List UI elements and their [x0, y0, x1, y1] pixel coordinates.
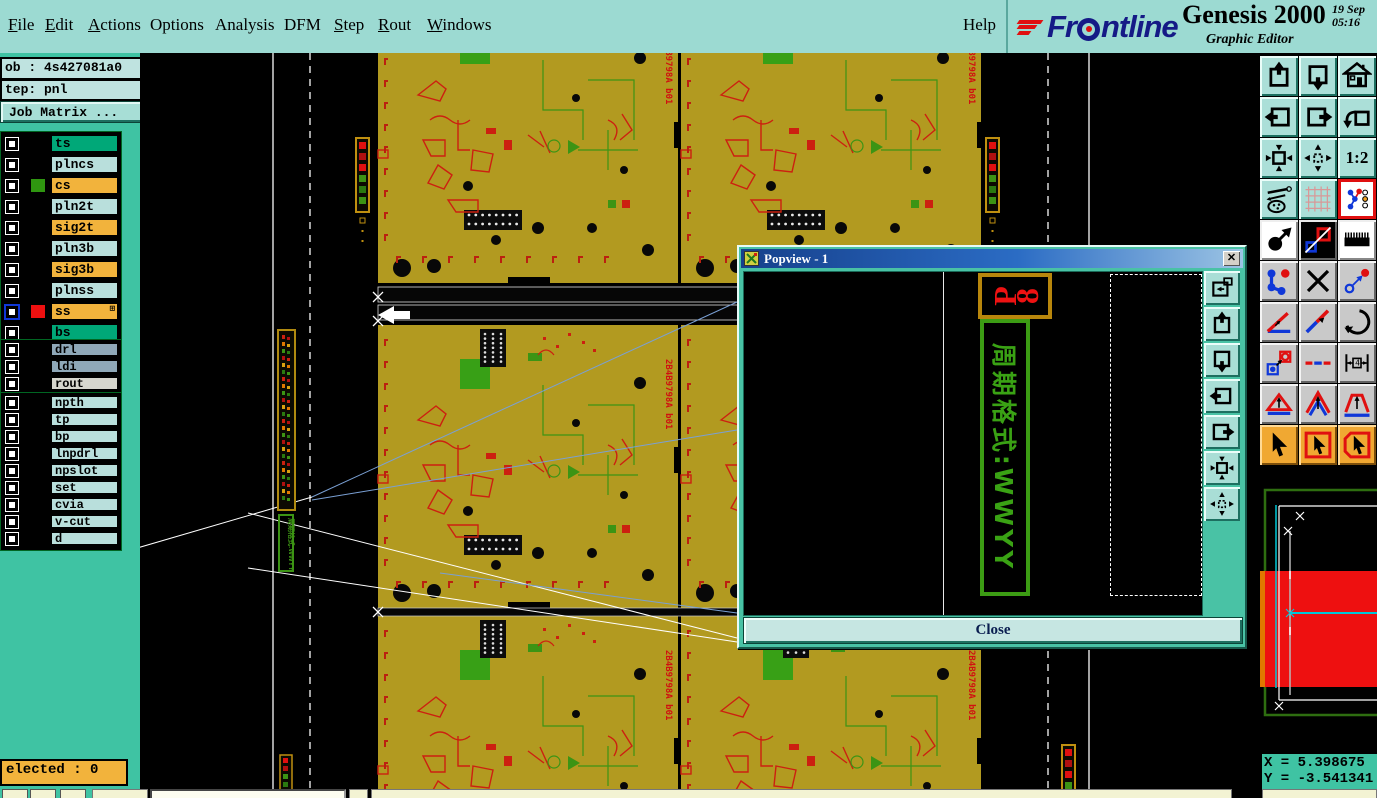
frontline-logo: Frntline: [1018, 7, 1178, 47]
angle-measure-button[interactable]: [1260, 302, 1298, 342]
selected-count: elected : 0: [0, 759, 128, 786]
dimension-button[interactable]: 4: [1338, 343, 1376, 383]
logo-speedlines-icon: [1018, 18, 1042, 36]
pcb-board: [378, 325, 679, 608]
layer-row-plncs: plncs: [3, 155, 119, 174]
popup-pan-left-button[interactable]: [1204, 379, 1240, 413]
right-toolbar-panel: 1:24 X = 5.398675 Y = -3.541341: [1260, 53, 1377, 798]
layer-swatch-d[interactable]: [31, 532, 45, 545]
datetime-display: 19 Sep 05:16: [1332, 3, 1365, 29]
layer-checkbox-pln2t[interactable]: [5, 200, 19, 214]
layer-row-sig3b: sig3b: [3, 260, 119, 279]
menu-rout[interactable]: Rout: [378, 15, 411, 35]
time-text: 05:16: [1332, 16, 1365, 29]
select-polygon-button[interactable]: [1338, 425, 1376, 465]
layer-row-sig2t: sig2t: [3, 218, 119, 237]
layer-checkbox-bs[interactable]: [5, 326, 19, 340]
popup-zoom-fit-button[interactable]: [1204, 451, 1240, 485]
layer-swatch-lnpdrl[interactable]: [31, 447, 45, 460]
layer-row-d: d: [3, 531, 119, 546]
pan-right-icon: [1303, 102, 1333, 132]
layer-name-cvia[interactable]: cvia: [50, 497, 119, 512]
layer-checkbox-plncs[interactable]: [5, 158, 19, 172]
arc-measure-button[interactable]: [1338, 302, 1376, 342]
panel-marker: [356, 138, 369, 242]
layer-name-ss[interactable]: ss⊞: [50, 302, 119, 321]
layer-list-misc: npthtpbplnpdrlnpslotsetcviav-cutd: [0, 392, 122, 551]
layer-swatch-plnss[interactable]: [31, 284, 45, 297]
home-view-button[interactable]: [1338, 56, 1376, 96]
fit-in-icon: [1209, 455, 1235, 481]
layer-checkbox-drl[interactable]: [5, 343, 19, 357]
scale-1-2-button[interactable]: 1:2: [1338, 138, 1376, 178]
layer-row-tp: tp: [3, 412, 119, 427]
layer-swatch-pln3b[interactable]: [31, 242, 45, 255]
layer-row-rout: rout: [3, 376, 119, 391]
grid-button[interactable]: [1299, 179, 1337, 219]
netlist-icon: [1344, 186, 1370, 212]
menu-options[interactable]: Options: [150, 15, 204, 35]
pan-left-button[interactable]: [1260, 97, 1298, 137]
center-out-icon: [1209, 491, 1235, 517]
layer-checkbox-ss[interactable]: [4, 304, 20, 320]
ruler-button[interactable]: [1338, 220, 1376, 260]
layer-list-primary: tsplncscspln2tsig2tpln3bsig3bplnssss⊞bs: [0, 131, 122, 347]
layer-row-cvia: cvia: [3, 497, 119, 512]
layer-row-v-cut: v-cut: [3, 514, 119, 529]
popview-panel-line: [943, 272, 944, 615]
triangle-tool-3-button[interactable]: [1338, 384, 1376, 424]
popview-titlebar[interactable]: Popview - 1 ✕: [741, 249, 1243, 268]
layer-name-plnss[interactable]: plnss: [50, 281, 119, 300]
popview-window-icon: [744, 251, 759, 266]
coord-y: Y = -3.541341: [1264, 771, 1377, 787]
layer-checkbox-cs[interactable]: [5, 179, 19, 193]
layer-badge-icon: ⊞: [110, 305, 115, 314]
pan-up-button[interactable]: [1260, 56, 1298, 96]
layer-name-rout[interactable]: rout: [50, 376, 119, 391]
select-single-button[interactable]: [1260, 425, 1298, 465]
logo-wordmark: Frntline: [1047, 9, 1178, 45]
product-title: Genesis 2000: [1182, 0, 1326, 30]
clear-x-icon: [1303, 266, 1333, 296]
clear-highlight-button[interactable]: [1299, 261, 1337, 301]
layer-row-ldi: ldi: [3, 359, 119, 374]
tools-icon: [1264, 184, 1294, 214]
popview-side-toolbar: [1204, 271, 1242, 614]
layer-name-pln2t[interactable]: pln2t: [50, 197, 119, 216]
svg-text:4: 4: [1355, 358, 1360, 368]
object-distance-button[interactable]: [1260, 343, 1298, 383]
sidebar: ob : 4s427081a0 tep: pnl Job Matrix ... …: [0, 53, 140, 798]
select-frame-button[interactable]: [1299, 425, 1337, 465]
menu-windows[interactable]: Windows: [427, 15, 492, 35]
layer-swatch-pln2t[interactable]: [31, 200, 45, 213]
layer-swatch-drl[interactable]: [31, 343, 45, 356]
layer-swatch-v-cut[interactable]: [31, 515, 45, 528]
popview-close-button[interactable]: Close: [743, 617, 1243, 644]
preview-svg: [1260, 467, 1377, 752]
application-window: FileEditActionsOptionsAnalysisDFMStepRou…: [0, 0, 1377, 798]
pan-left-icon: [1209, 383, 1235, 409]
coord-x: X = 5.398675: [1264, 755, 1377, 771]
layer-name-npth[interactable]: npth: [50, 395, 119, 410]
pcb-board: [378, 53, 679, 283]
layer-name-npslot[interactable]: npslot: [50, 463, 119, 478]
triangle-tool-1-button[interactable]: [1260, 384, 1298, 424]
cursor-poly-icon: [1342, 430, 1372, 460]
zoom-center-button[interactable]: [1299, 138, 1337, 178]
layer-row-npslot: npslot: [3, 463, 119, 478]
popview-window[interactable]: Popview - 1 ✕ P8 周期格式:WWYY Close: [737, 245, 1247, 649]
pan-up-icon: [1209, 311, 1235, 337]
layer-name-d[interactable]: d: [50, 531, 119, 546]
pitch-measure-button[interactable]: [1299, 343, 1337, 383]
layer-checkbox-npth[interactable]: [5, 396, 19, 410]
netlist-button[interactable]: [1338, 179, 1376, 219]
layer-name-tp[interactable]: tp: [50, 412, 119, 427]
layer-compare-icon: [1303, 225, 1333, 255]
layer-swatch-ts[interactable]: [31, 137, 45, 150]
layer-row-pln3b: pln3b: [3, 239, 119, 258]
layer-name-sig2t[interactable]: sig2t: [50, 218, 119, 237]
layer-row-cs: cs: [3, 176, 119, 195]
angle-icon: [1264, 307, 1294, 337]
bottom-button-b[interactable]: [349, 789, 368, 798]
layer-swatch-set[interactable]: [31, 481, 45, 494]
pan-down-icon: [1303, 61, 1333, 91]
layer-checkbox-d[interactable]: [5, 532, 19, 546]
pan-down-button[interactable]: [1299, 56, 1337, 96]
layer-name-sig3b[interactable]: sig3b: [50, 260, 119, 279]
layer-checkbox-npslot[interactable]: [5, 464, 19, 478]
layer-name-v-cut[interactable]: v-cut: [50, 514, 119, 529]
layer-row-drl: drl: [3, 342, 119, 357]
popview-close-x-button[interactable]: ✕: [1223, 251, 1240, 266]
pitch-icon: [1303, 348, 1333, 378]
menubar-divider: [1006, 0, 1008, 53]
layer-checkbox-sig2t[interactable]: [5, 221, 19, 235]
scale-label: 1:2: [1346, 148, 1369, 168]
popup-copy-view-button[interactable]: [1204, 271, 1240, 305]
ruler-icon: [1342, 225, 1372, 255]
layer-swatch-npth[interactable]: [31, 396, 45, 409]
panel-legend-text: 周期格式:WWYY: [279, 515, 296, 571]
feature-info-icon: [1264, 225, 1294, 255]
layer-row-bp: bp: [3, 429, 119, 444]
triangle-tool-2-button[interactable]: [1299, 384, 1337, 424]
arc-icon: [1342, 307, 1372, 337]
obj-dist-icon: [1264, 348, 1294, 378]
layer-name-ldi[interactable]: ldi: [50, 359, 119, 374]
layer-compare-button[interactable]: [1299, 220, 1337, 260]
job-matrix-button[interactable]: Job Matrix ...: [0, 101, 143, 123]
cursor-frame-icon: [1303, 430, 1333, 460]
layer-name-pln3b[interactable]: pln3b: [50, 239, 119, 258]
popup-pan-up-button[interactable]: [1204, 307, 1240, 341]
tri-a-icon: [1264, 389, 1294, 419]
menu-step[interactable]: Step: [334, 15, 364, 35]
coordinate-readout: X = 5.398675 Y = -3.541341: [1260, 752, 1377, 792]
bottom-command-input[interactable]: [150, 789, 346, 798]
bottom-status-bar: [371, 789, 1232, 798]
menu-analysis[interactable]: Analysis: [215, 15, 275, 35]
layer-name-set[interactable]: set: [50, 480, 119, 495]
product-subtitle: Graphic Editor: [1206, 32, 1294, 48]
layer-checkbox-v-cut[interactable]: [5, 515, 19, 529]
layer-name-plncs[interactable]: plncs: [50, 155, 119, 174]
bottom-right-bar: [1262, 789, 1377, 798]
job-field[interactable]: ob : 4s427081a0: [0, 57, 146, 80]
layer-list-drill: drlldirout: [0, 339, 122, 396]
layer-swatch-sig3b[interactable]: [31, 263, 45, 276]
layer-checkbox-lnpdrl[interactable]: [5, 447, 19, 461]
pan-down-icon: [1209, 347, 1235, 373]
menu-file[interactable]: File: [8, 15, 34, 35]
stamp-date-format: 周期格式:WWYY: [980, 319, 1030, 596]
popview-dashed-outline: [1110, 274, 1202, 596]
panel-marker: [986, 138, 999, 242]
pan-right-icon: [1209, 419, 1235, 445]
step-field[interactable]: tep: pnl: [0, 79, 146, 101]
layer-swatch-rout[interactable]: [31, 377, 45, 390]
layer-name-lnpdrl[interactable]: lnpdrl: [50, 446, 119, 461]
cursor-icon: [1264, 430, 1294, 460]
menu-edit[interactable]: Edit: [45, 15, 73, 35]
net-highlight-icon: [1264, 266, 1294, 296]
popup-pan-down-button[interactable]: [1204, 343, 1240, 377]
brand-area: Frntline Genesis 2000 Graphic Editor 19 …: [1010, 0, 1377, 53]
color-setup-button[interactable]: [1260, 179, 1298, 219]
dimension-icon: 4: [1342, 348, 1372, 378]
menu-help[interactable]: Help: [963, 15, 996, 35]
layer-checkbox-pln3b[interactable]: [5, 242, 19, 256]
popup-pan-right-button[interactable]: [1204, 415, 1240, 449]
logo-target-icon: [1077, 18, 1100, 41]
layer-checkbox-rout[interactable]: [5, 377, 19, 391]
layer-swatch-npslot[interactable]: [31, 464, 45, 477]
layer-swatch-plncs[interactable]: [31, 158, 45, 171]
point-measure-button[interactable]: [1338, 261, 1376, 301]
layer-row-plnss: plnss: [3, 281, 119, 300]
layer-checkbox-ldi[interactable]: [5, 360, 19, 374]
layer-row-ts: ts: [3, 134, 119, 153]
pan-up-icon: [1264, 61, 1294, 91]
layer-checkbox-cvia[interactable]: [5, 498, 19, 512]
toolbar-grid: 1:24: [1260, 56, 1376, 465]
layer-swatch-bp[interactable]: [31, 430, 45, 443]
layer-checkbox-tp[interactable]: [5, 413, 19, 427]
popview-canvas[interactable]: P8 周期格式:WWYY: [743, 271, 1203, 616]
feature-info-button[interactable]: [1260, 220, 1298, 260]
layer-row-ss: ss⊞: [3, 302, 119, 321]
layer-name-ts[interactable]: ts: [50, 134, 119, 153]
zoom-fit-button[interactable]: [1260, 138, 1298, 178]
layer-name-drl[interactable]: drl: [50, 342, 119, 357]
fit-in-icon: [1264, 143, 1294, 173]
menu-bar: FileEditActionsOptionsAnalysisDFMStepRou…: [0, 0, 1377, 56]
pcb-board: [378, 616, 679, 798]
layer-row-npth: npth: [3, 395, 119, 410]
layer-swatch-tp[interactable]: [31, 413, 45, 426]
tri-b-icon: [1303, 389, 1333, 419]
menu-dfm[interactable]: DFM: [284, 15, 321, 35]
layer-swatch-sig2t[interactable]: [31, 221, 45, 234]
popup-zoom-center-button[interactable]: [1204, 487, 1240, 521]
center-out-icon: [1303, 143, 1333, 173]
bottom-button-a[interactable]: [92, 789, 148, 798]
layer-row-lnpdrl: lnpdrl: [3, 446, 119, 461]
layer-swatch-ss[interactable]: [31, 305, 45, 318]
layer-checkbox-sig3b[interactable]: [5, 263, 19, 277]
stamp-p8: P8: [978, 273, 1052, 319]
layer-swatch-cvia[interactable]: [31, 498, 45, 511]
layer-name-cs[interactable]: cs: [50, 176, 119, 195]
pan-right-button[interactable]: [1299, 97, 1337, 137]
prev-view-icon: [1342, 102, 1372, 132]
menu-actions[interactable]: Actions: [88, 15, 141, 35]
layer-checkbox-plnss[interactable]: [5, 284, 19, 298]
layer-swatch-ldi[interactable]: [31, 360, 45, 373]
point-arrow-icon: [1342, 266, 1372, 296]
layer-swatch-bs[interactable]: [31, 326, 45, 339]
panel-legend-strip: [278, 330, 295, 510]
tri-c-icon: [1342, 389, 1372, 419]
grid-icon: [1303, 184, 1333, 214]
svg-text:周期格式:WWYY: 周期格式:WWYY: [287, 518, 296, 571]
home-icon: [1342, 61, 1372, 91]
popview-title: Popview - 1: [764, 251, 1223, 267]
layer-name-bp[interactable]: bp: [50, 429, 119, 444]
previous-view-button[interactable]: [1338, 97, 1376, 137]
layer-swatch-cs[interactable]: [31, 179, 45, 192]
copy-view-icon: [1209, 275, 1235, 301]
layer-row-set: set: [3, 480, 119, 495]
layer-checkbox-set[interactable]: [5, 481, 19, 495]
layer-row-pln2t: pln2t: [3, 197, 119, 216]
pan-left-icon: [1264, 102, 1294, 132]
layer-checkbox-ts[interactable]: [5, 137, 19, 151]
slope-measure-button[interactable]: [1299, 302, 1337, 342]
bottom-toolbar-strip: [0, 788, 1377, 798]
net-highlight-button[interactable]: [1260, 261, 1298, 301]
stamp-p8-char: 8: [1012, 288, 1042, 304]
slope-icon: [1303, 307, 1333, 337]
layer-checkbox-bp[interactable]: [5, 430, 19, 444]
